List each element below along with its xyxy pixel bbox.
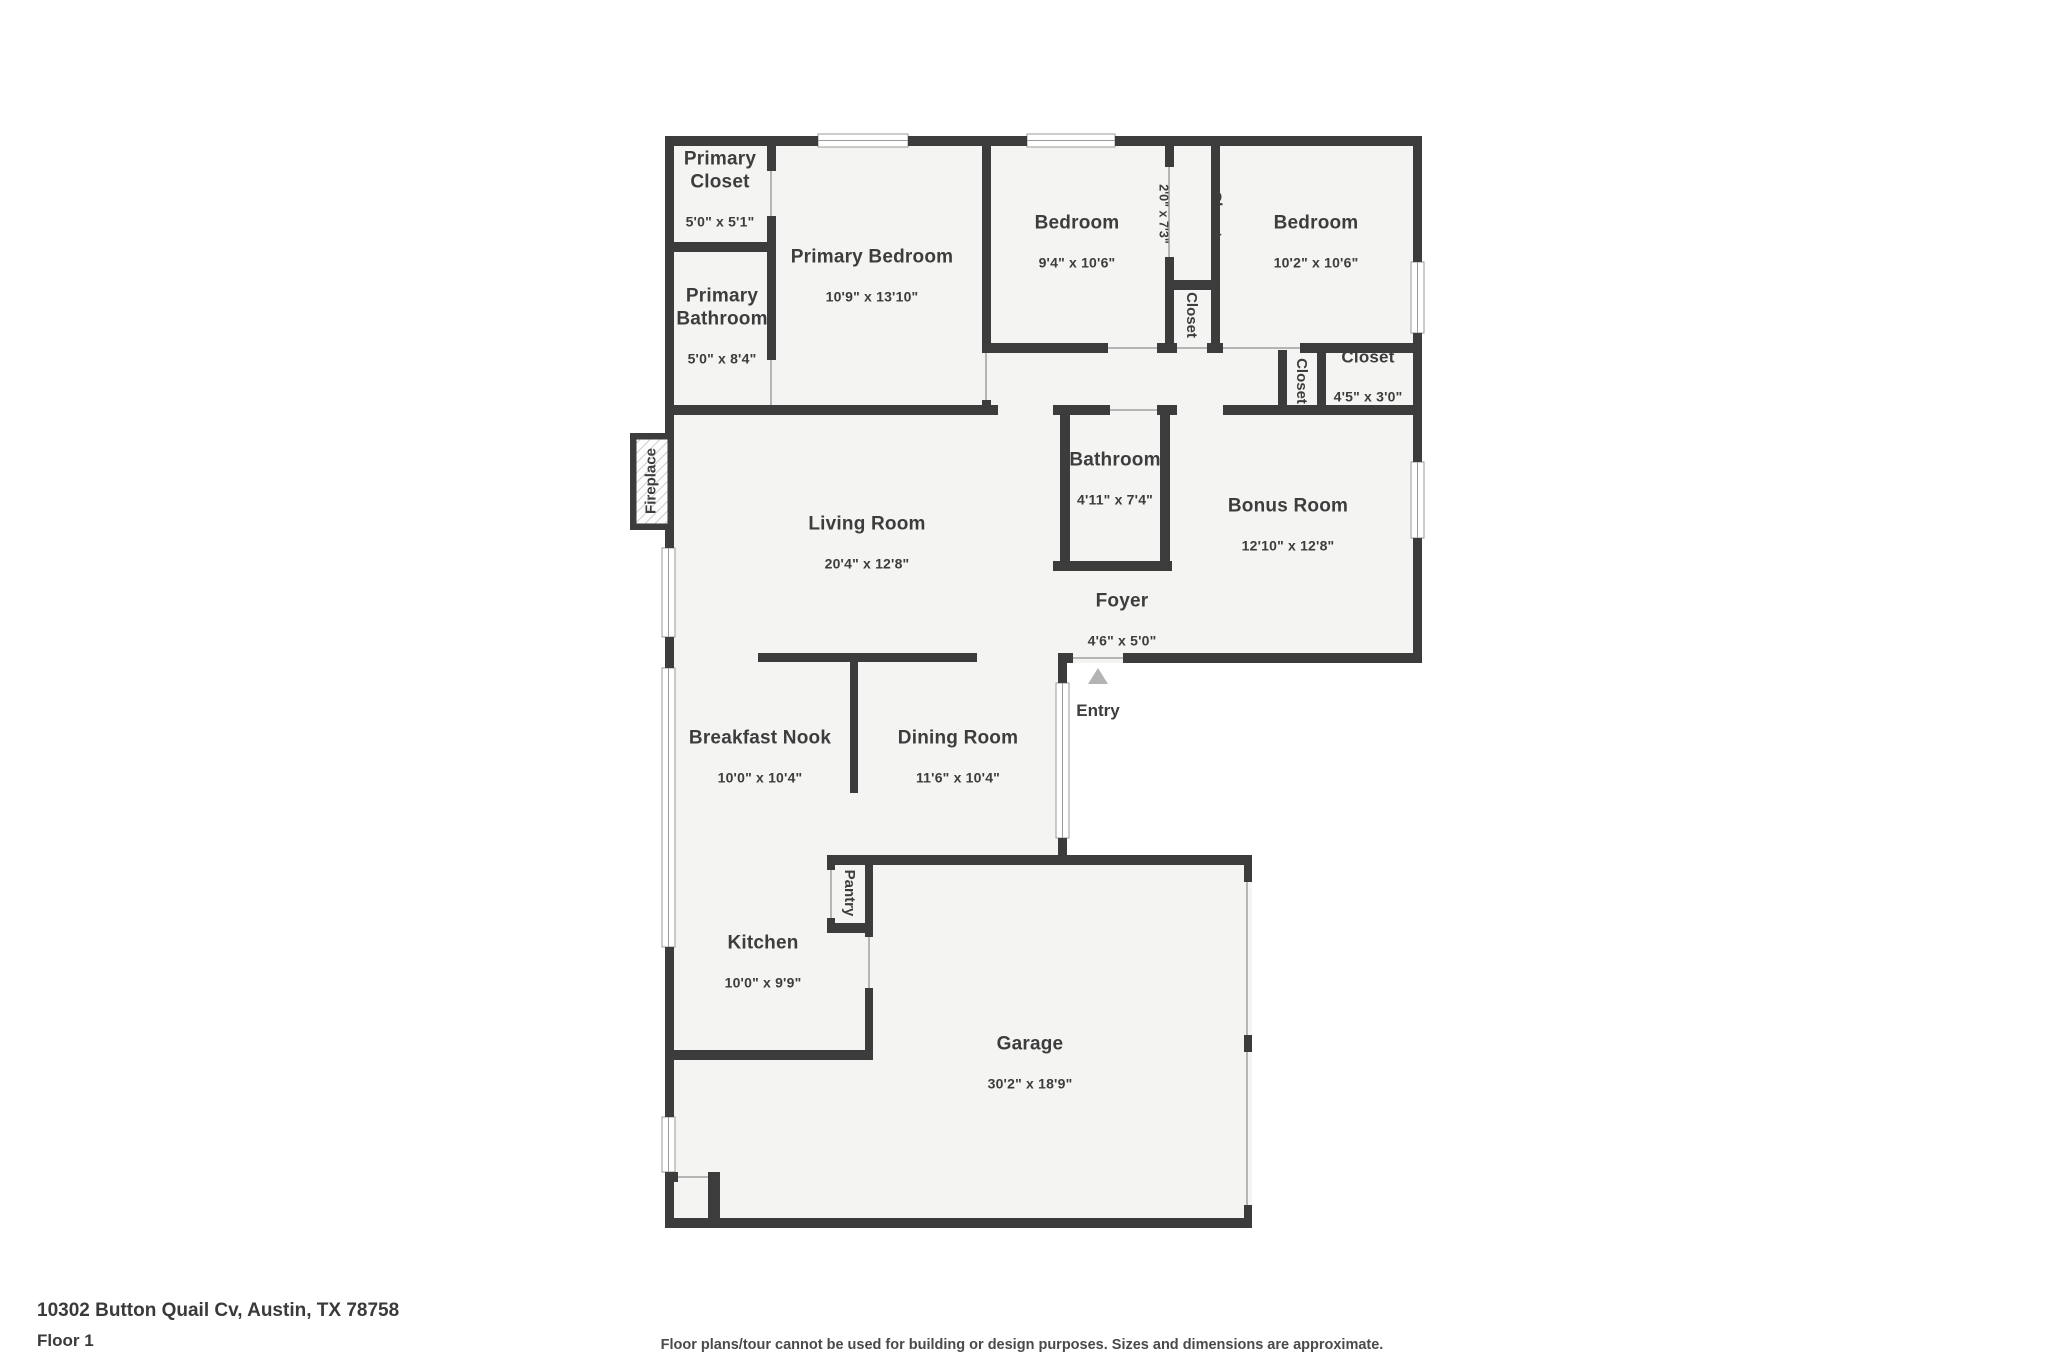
room-label-living-room: Living Room 20'4" x 12'8": [808, 494, 925, 591]
room-dims: 11'6" x 10'4": [898, 767, 1018, 787]
room-dims: 5'0" x 8'4": [676, 349, 767, 369]
room-name: Pantry: [840, 870, 858, 917]
room-label-primary-closet: Primary Closet 5'0" x 5'1": [684, 130, 756, 251]
room-dims: 30'2" x 18'9": [988, 1073, 1073, 1093]
room-label-pantry: Pantry: [804, 870, 894, 917]
room-name: Closet: [1292, 358, 1310, 404]
room-dims: 20'4" x 12'8": [808, 553, 925, 573]
room-name: Bedroom: [1274, 211, 1359, 234]
room-label-closet-row: Closet: [1256, 358, 1346, 404]
room-name: Closet: [1207, 184, 1225, 244]
room-dims: 2'0" x 7'3": [1156, 184, 1171, 244]
room-dims: 5'0" x 5'1": [684, 212, 756, 232]
room-name: Kitchen: [725, 931, 802, 954]
footer-disclaimer: Floor plans/tour cannot be used for buil…: [661, 1337, 1384, 1353]
room-dims: 12'10" x 12'8": [1228, 535, 1348, 555]
room-name: Closet: [1182, 292, 1200, 338]
room-name: Breakfast Nook: [689, 726, 831, 749]
room-dims: 9'4" x 10'6": [1035, 252, 1120, 272]
room-name: Living Room: [808, 512, 925, 535]
room-label-fireplace: Fireplace: [643, 448, 660, 514]
room-label-closet-2x7: Closet 2'0" x 7'3": [1120, 184, 1261, 244]
room-name: Bedroom: [1035, 211, 1120, 234]
room-label-primary-bedroom: Primary Bedroom 10'9" x 13'10": [791, 227, 953, 324]
room-name: Garage: [988, 1032, 1073, 1055]
room-dims: 4'5" x 3'0": [1334, 386, 1403, 406]
room-name: Entry: [1076, 701, 1119, 720]
room-name: Primary Bedroom: [791, 245, 953, 268]
room-dims: 10'0" x 10'4": [689, 767, 831, 787]
entry-label: Entry: [1076, 681, 1119, 721]
room-name: Bathroom: [1069, 448, 1160, 471]
footer-floor-label: Floor 1: [37, 1331, 94, 1351]
room-dims: 4'11" x 7'4": [1069, 489, 1160, 509]
room-name: Primary Bathroom: [676, 285, 767, 331]
room-dims: 10'2" x 10'6": [1274, 252, 1359, 272]
room-label-bathroom: Bathroom 4'11" x 7'4": [1069, 430, 1160, 527]
room-name: Foyer: [1088, 589, 1157, 612]
floor-plan-drawing: [0, 0, 2048, 1365]
room-dims: 10'9" x 13'10": [791, 286, 953, 306]
room-label-kitchen: Kitchen 10'0" x 9'9": [725, 913, 802, 1010]
footer-address: 10302 Button Quail Cv, Austin, TX 78758: [37, 1300, 399, 1322]
room-label-garage: Garage 30'2" x 18'9": [988, 1014, 1073, 1111]
room-name: Primary Closet: [684, 148, 756, 194]
room-name: Dining Room: [898, 726, 1018, 749]
room-label-bedroom-2: Bedroom 10'2" x 10'6": [1274, 193, 1359, 290]
room-label-bedroom-1: Bedroom 9'4" x 10'6": [1035, 193, 1120, 290]
room-label-primary-bathroom: Primary Bathroom 5'0" x 8'4": [676, 267, 767, 388]
room-name: Fireplace: [643, 448, 660, 514]
room-dims: 10'0" x 9'9": [725, 972, 802, 992]
room-label-closet-4x3: Closet 4'5" x 3'0": [1334, 329, 1403, 424]
room-dims: 4'6" x 5'0": [1088, 630, 1157, 650]
floor-plan-page: Primary Closet 5'0" x 5'1" Primary Bedro…: [0, 0, 2048, 1365]
room-name: Bonus Room: [1228, 494, 1348, 517]
room-label-foyer: Foyer 4'6" x 5'0": [1088, 571, 1157, 668]
room-name: Closet: [1334, 347, 1403, 368]
room-label-bonus-room: Bonus Room 12'10" x 12'8": [1228, 476, 1348, 573]
room-label-dining-room: Dining Room 11'6" x 10'4": [898, 708, 1018, 805]
room-label-breakfast-nook: Breakfast Nook 10'0" x 10'4": [689, 708, 831, 805]
room-label-closet-hall: Closet: [1146, 292, 1236, 338]
